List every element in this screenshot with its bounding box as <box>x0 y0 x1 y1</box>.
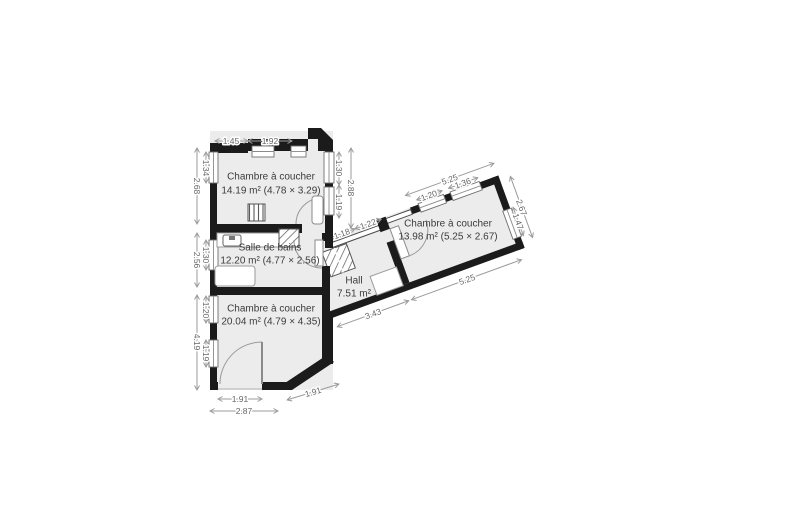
radiator <box>248 204 265 221</box>
door-leaf <box>312 196 323 224</box>
floor-plan: 1.18 1.22 5.25 1.20 1.36 2.67 1.47 5.25 … <box>0 0 800 528</box>
floor-plan-canvas: 1.18 1.22 5.25 1.20 1.36 2.67 1.47 5.25 … <box>0 0 800 528</box>
room-label-bedroom-top: Chambre à coucher <box>227 172 315 183</box>
room-label-bedroom-right: Chambre à coucher <box>404 219 492 230</box>
dim-label: 1.19 <box>201 345 211 362</box>
dim-label: 3.43 <box>364 306 383 321</box>
room-area-bathroom: 12.20 m² (4.77 × 2.56) <box>220 256 319 267</box>
wall <box>210 287 330 295</box>
room-label-hall: Hall <box>345 276 362 287</box>
room-label-bedroom-bottom: Chambre à coucher <box>227 304 315 315</box>
dim-label: 1.30 <box>201 247 211 264</box>
diagonal-wing: 1.18 1.22 5.25 1.20 1.36 2.67 1.47 5.25 … <box>300 153 545 332</box>
dim-label: 1.91 <box>232 394 249 404</box>
dim-label: 2.88 <box>346 180 356 197</box>
wall <box>210 382 218 390</box>
bathtub <box>215 266 255 286</box>
dim-label: 2.68 <box>192 178 202 195</box>
sink-faucet-icon <box>229 236 235 240</box>
dim-label: 1.19 <box>334 194 344 211</box>
room-label-bathroom: Salle de bains <box>239 243 302 254</box>
room-area-bedroom-bottom: 20.04 m² (4.79 × 4.35) <box>221 317 320 328</box>
dim-label: 1.92 <box>262 136 279 146</box>
room-area-bedroom-right: 13.98 m² (5.25 × 2.67) <box>398 232 497 243</box>
wall <box>322 266 330 287</box>
dim-label: 1.45 <box>223 136 240 146</box>
room-area-bedroom-top: 14.19 m² (4.78 × 3.29) <box>221 186 320 197</box>
dim-label: 2.56 <box>192 252 202 269</box>
dim-label: 1.30 <box>334 160 344 177</box>
dim-label: 1.20 <box>201 302 211 319</box>
room-area-hall: 7.51 m² <box>337 289 372 300</box>
dim-label: 5.25 <box>457 272 476 287</box>
dim-label: 1.34 <box>201 160 211 177</box>
dim-label: 4.19 <box>192 334 202 351</box>
dim-label: 2.87 <box>236 406 253 416</box>
